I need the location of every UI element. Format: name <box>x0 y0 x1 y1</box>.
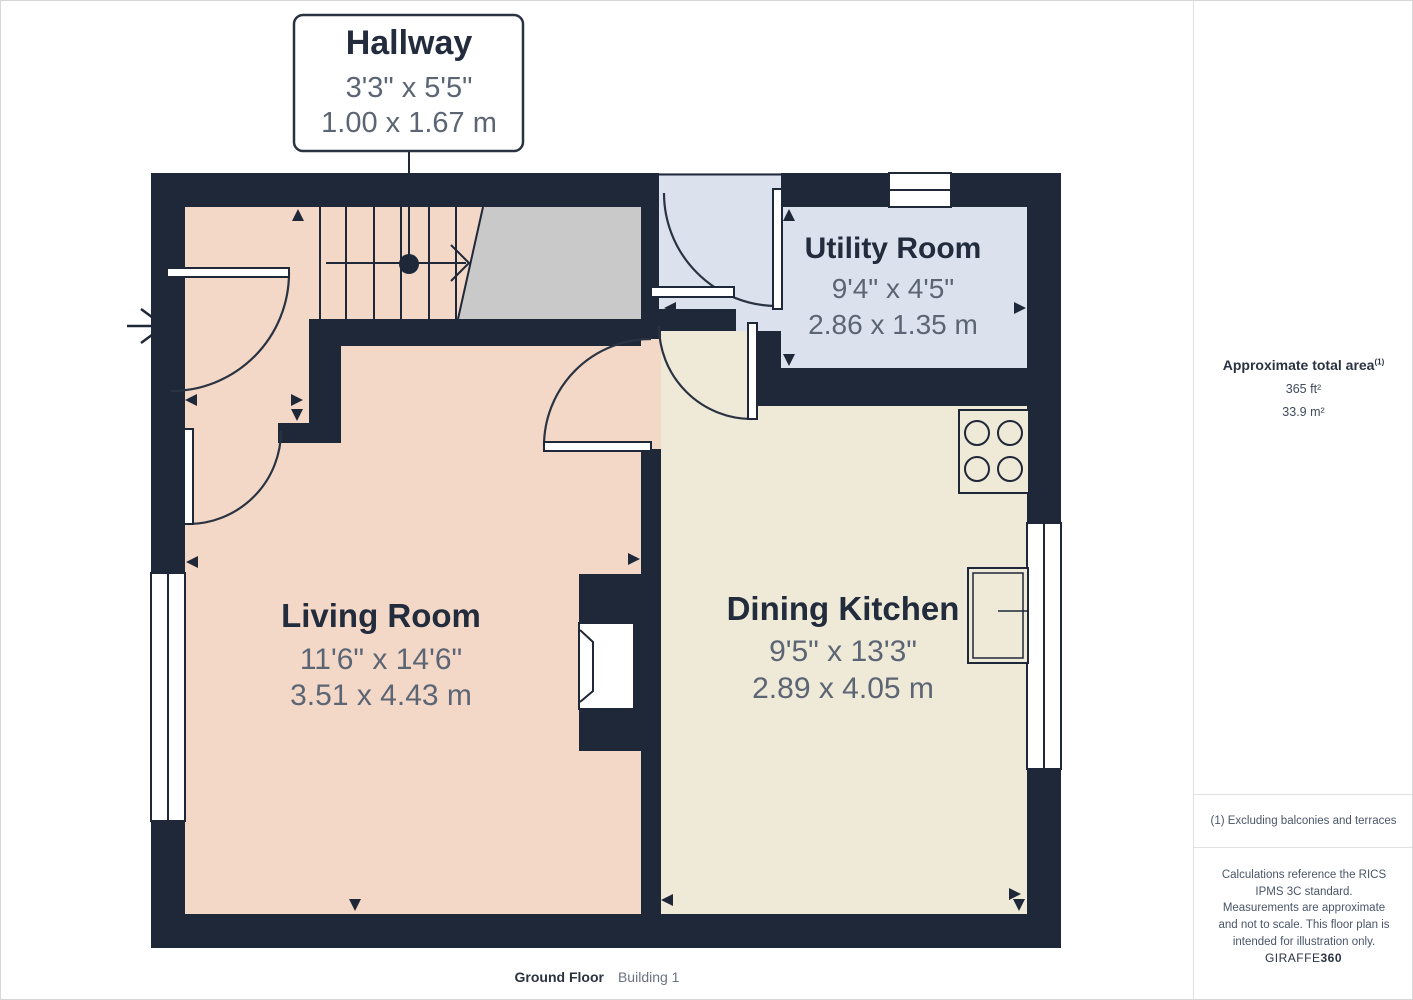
brand-logo: GIRAFFE360 <box>1194 951 1413 965</box>
living-room-label: Living Room 11'6" x 14'6" 3.51 x 4.43 m <box>281 597 481 712</box>
floorplan-page: Hallway 3'3" x 5'5" 1.00 x 1.67 m Utilit… <box>0 0 1413 1000</box>
callout-metric: 1.00 x 1.67 m <box>321 107 497 139</box>
footnote: (1) Excluding balconies and terraces <box>1194 794 1413 848</box>
area-title: Approximate total area(1) <box>1194 357 1413 373</box>
svg-text:Living Room: Living Room <box>281 597 481 634</box>
svg-text:2.86 x 1.35 m: 2.86 x 1.35 m <box>808 309 978 340</box>
floor-caption: Ground FloorBuilding 1 <box>1 969 1193 985</box>
hallway-callout: Hallway 3'3" x 5'5" 1.00 x 1.67 m <box>294 15 523 151</box>
svg-text:3.51 x 4.43 m: 3.51 x 4.43 m <box>290 679 472 712</box>
sink <box>968 568 1028 663</box>
sidebar: Approximate total area(1) 365 ft² 33.9 m… <box>1193 1 1413 1000</box>
svg-text:Dining Kitchen: Dining Kitchen <box>727 590 960 627</box>
svg-text:9'4" x 4'5": 9'4" x 4'5" <box>832 273 954 304</box>
building-name: Building 1 <box>618 969 680 985</box>
footnote-marker: (1) <box>1374 357 1384 366</box>
brand-name: GIRAFFE <box>1265 951 1321 965</box>
window-utility <box>889 173 951 207</box>
landing <box>458 207 641 319</box>
window-right <box>1027 523 1061 769</box>
disclaimer: Calculations reference the RICS IPMS 3C … <box>1218 867 1390 950</box>
svg-text:11'6" x 14'6": 11'6" x 14'6" <box>300 643 462 676</box>
window-left <box>151 573 185 821</box>
brand-suffix: 360 <box>1320 951 1342 965</box>
svg-text:9'5" x 13'3": 9'5" x 13'3" <box>769 635 917 668</box>
svg-text:2.89 x 4.05 m: 2.89 x 4.05 m <box>752 672 934 705</box>
svg-text:Utility Room: Utility Room <box>805 232 982 265</box>
hob <box>959 410 1029 493</box>
fireplace <box>579 574 661 751</box>
footnote-text: (1) Excluding balconies and terraces <box>1210 815 1396 827</box>
floor-name: Ground Floor <box>515 969 604 985</box>
area-metric: 33.9 m² <box>1194 405 1413 419</box>
callout-room-name: Hallway <box>346 24 473 62</box>
area-imperial: 365 ft² <box>1194 382 1413 396</box>
callout-imperial: 3'3" x 5'5" <box>346 72 473 104</box>
area-summary: Approximate total area(1) 365 ft² 33.9 m… <box>1194 357 1413 419</box>
room-back-hallway <box>659 173 781 331</box>
